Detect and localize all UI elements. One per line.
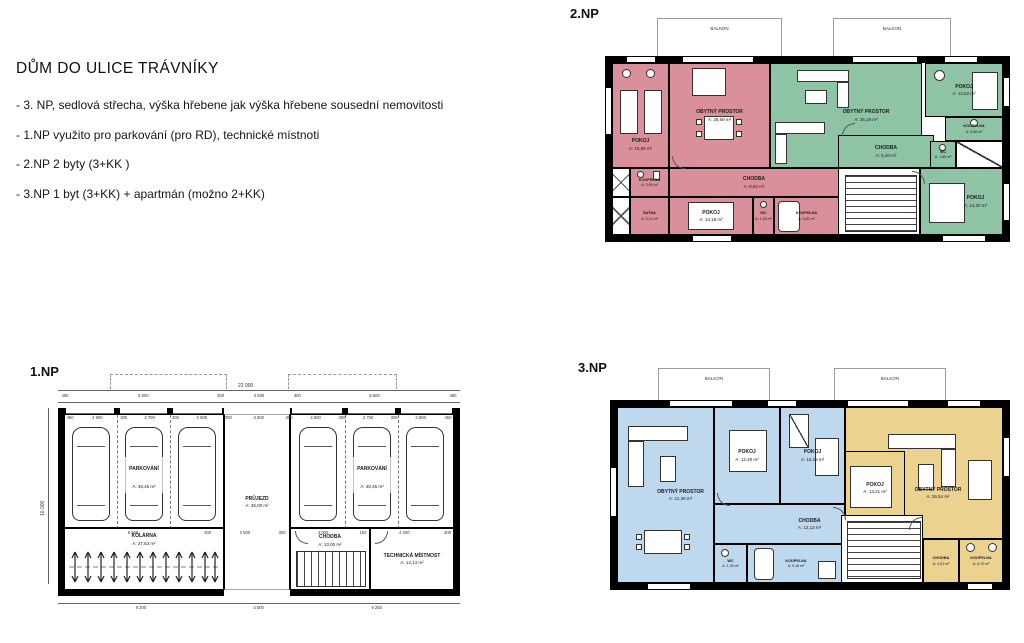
dimension-label: 3 500 xyxy=(227,393,292,398)
room-area: A: 5,18 m² xyxy=(788,564,805,568)
garage-right: PARKOVÁNÍ A: 48,45 m² xyxy=(290,414,454,528)
room-area: A: 27,63 m² xyxy=(132,541,155,546)
dimension-row: 8 5003003 5003004 0001504 200400 xyxy=(64,530,454,535)
dimension-label: 450 xyxy=(64,415,76,420)
room-prujezd: PRŮJEZD A: 35,00 m² xyxy=(224,414,290,590)
room-area: A: 1,63 m² xyxy=(755,217,772,221)
bed-shape xyxy=(620,90,638,134)
room-area: A: 26,54 m² xyxy=(926,494,949,499)
storage-niche xyxy=(612,197,630,235)
window xyxy=(605,87,612,135)
dimension-label: 300 xyxy=(291,393,303,398)
window xyxy=(942,235,986,242)
shower-shape xyxy=(956,141,1003,168)
balcony-label: BALKON xyxy=(705,376,723,381)
projection-outline xyxy=(288,374,397,389)
room-wc: WC A: 1,85 m² xyxy=(930,141,956,168)
dimension-label: 150 xyxy=(358,530,367,535)
sofa-shape xyxy=(797,70,849,82)
floor-plan-np1: 1.NP 22 000 4508 5003003 5003008 500450 … xyxy=(28,358,488,638)
dimension-row: 4502 8003002 7003002 8003003 5003002 800… xyxy=(64,415,454,420)
stall-divider xyxy=(398,415,399,528)
sink-shape xyxy=(721,549,729,557)
window xyxy=(944,56,978,63)
room-name: TECHNICKÁ MÍSTNOST xyxy=(384,553,441,561)
garage-door-opening xyxy=(292,408,452,414)
sofa-shape xyxy=(941,449,956,487)
dimension-label: 3 500 xyxy=(224,605,294,610)
room-area: A: 4,14 m² xyxy=(641,217,658,221)
window xyxy=(647,583,691,590)
pier xyxy=(167,408,173,414)
window xyxy=(610,467,617,517)
dimension-label: 22 000 xyxy=(238,383,253,389)
sofa-shape xyxy=(837,82,849,108)
stairwell xyxy=(838,168,920,235)
room-name: POKOJ xyxy=(967,195,985,203)
dimension-label: 300 xyxy=(202,530,214,535)
dimension-label: 10 000 xyxy=(40,501,46,516)
room-koupelna: KOUPELNA A: 6,72 m² xyxy=(959,539,1003,583)
wardrobe-shape xyxy=(789,414,809,448)
dimension-label: 9 250 xyxy=(293,605,460,610)
room-name: CHODBA xyxy=(743,176,765,184)
car-shape xyxy=(178,427,216,521)
table-shape xyxy=(934,70,945,81)
room-name: CHODBA xyxy=(319,534,341,542)
dining-table-shape xyxy=(968,460,992,500)
window xyxy=(692,235,732,242)
dimension-label: 450 xyxy=(446,393,460,398)
room-name: OBYTNÝ PROSTOR xyxy=(696,109,743,117)
bullet-line: - 3. NP, sedlová střecha, výška hřebene … xyxy=(16,98,496,112)
coffee-table-shape xyxy=(660,456,676,482)
room-area: A: 5,80 m² xyxy=(798,217,815,221)
room-satna: ŠATNA A: 4,14 m² xyxy=(630,197,669,235)
room-koupelna: KOUPELNA A: 5,18 m² xyxy=(747,544,845,583)
pier xyxy=(342,408,348,414)
window xyxy=(847,400,909,407)
room-area: A: 3,99 m² xyxy=(641,183,658,187)
car-shape xyxy=(72,427,110,521)
floor-label-np2: 2.NP xyxy=(570,6,599,21)
floor-plan-np3: BALKON BALKON OBYTNÝ PROSTOR A: 41,36 m² xyxy=(610,366,1016,592)
room-koupelna: KOUPELNA A: 5,06 m² xyxy=(945,117,1003,141)
window xyxy=(1003,437,1010,477)
room-area: A: 13,62 m² xyxy=(952,91,975,96)
plan-outline-np3: OBYTNÝ PROSTOR A: 41,36 m² POKOJ A: 12,4… xyxy=(610,400,1010,590)
dimension-label: 8 500 xyxy=(303,393,446,398)
room-area: A: 12,13 m² xyxy=(798,525,821,530)
dimension-label: 450 xyxy=(58,393,72,398)
window xyxy=(1003,183,1010,221)
room-area: A: 48,45 m² xyxy=(360,484,383,489)
wc-shape xyxy=(988,543,997,552)
window xyxy=(947,400,981,407)
balcony: BALKON xyxy=(657,18,782,56)
chair-shape xyxy=(696,119,702,125)
room-chodba: CHODBA A: 8,83 m² xyxy=(669,168,839,197)
dimension-line xyxy=(58,390,460,391)
room-pokoj: POKOJ A: 13,19 m² xyxy=(669,197,753,235)
garage-door-opening xyxy=(66,408,222,414)
passage-opening xyxy=(224,408,290,414)
room-name: POKOJ xyxy=(702,210,720,218)
room-koupelna: KOUPELNA A: 3,99 m² xyxy=(630,168,669,197)
balcony-label: BALKON xyxy=(883,26,901,31)
room-name: POKOJ xyxy=(632,138,650,146)
dining-table-shape xyxy=(644,530,682,554)
room-pokoj: POKOJ A: 13,21 m² xyxy=(845,451,905,525)
room-area: A: 48,45 m² xyxy=(132,484,155,489)
balcony-label: BALKON xyxy=(710,26,728,31)
floor-plan-np2: BALKON BALKON POKOJ A: 16,65 m² xyxy=(605,18,1011,244)
sofa-shape xyxy=(888,434,956,449)
floor-label-np3: 3.NP xyxy=(578,360,607,375)
room-pokoj: POKOJ A: 13,62 m² xyxy=(925,63,1003,117)
pier xyxy=(395,408,401,414)
kitchen-counter-shape xyxy=(775,134,787,164)
sink-shape xyxy=(966,543,975,552)
dimension-label: 300 xyxy=(223,415,233,420)
dimension-label: 8 500 xyxy=(72,393,215,398)
chair-shape xyxy=(696,131,702,137)
sofa-shape xyxy=(628,441,644,487)
dimension-label: 300 xyxy=(276,530,288,535)
room-area: A: 28,69 m² xyxy=(708,117,731,122)
dimension-label: 300 xyxy=(337,415,347,420)
room-area: A: 15,18 m² xyxy=(801,457,824,462)
sofa-shape xyxy=(628,426,688,441)
dimension-line xyxy=(48,408,49,584)
room-chodba: CHODBA A: 4,51 m² xyxy=(923,539,959,583)
room-name: PARKOVÁNÍ xyxy=(129,466,159,472)
room-label: PARKOVÁNÍ A: 48,45 m² xyxy=(349,457,395,493)
room-name: PRŮJEZD xyxy=(245,496,268,504)
shower-shape xyxy=(818,561,836,579)
room-name: POKOJ xyxy=(738,449,756,457)
plan-outline-np2: POKOJ A: 16,65 m² OBYTNÝ PROSTOR A: 28,6… xyxy=(605,56,1010,242)
window xyxy=(1003,77,1010,107)
dimension-label: 2 800 xyxy=(181,415,223,420)
car-shape xyxy=(299,427,337,521)
dimension-label: 300 xyxy=(170,415,180,420)
balcony: BALKON xyxy=(658,368,770,400)
room-obytny-prostor: OBYTNÝ PROSTOR A: 28,69 m² xyxy=(669,63,770,168)
sink-shape xyxy=(760,201,767,208)
bed-shape xyxy=(644,90,662,134)
chair-shape xyxy=(636,544,642,550)
room-pokoj: POKOJ A: 15,18 m² xyxy=(780,407,845,504)
room-chodba: CHODBA A: 12,13 m² xyxy=(714,504,845,544)
bullet-line: - 1.NP využito pro parkování (pro RD), t… xyxy=(16,128,496,142)
room-technicka-mistnost: TECHNICKÁ MÍSTNOST A: 14,14 m² xyxy=(370,528,454,590)
table-shape xyxy=(646,69,655,78)
page-title: DŮM DO ULICE TRÁVNÍKY xyxy=(16,60,496,78)
dimension-row: 4508 5003003 5003008 500450 xyxy=(58,393,460,398)
dimension-label: 8 500 xyxy=(64,530,202,535)
dimension-label: 450 xyxy=(442,415,454,420)
sofa-shape xyxy=(692,68,726,96)
balcony-label: BALKON xyxy=(881,376,899,381)
dimension-label: 4 200 xyxy=(368,530,441,535)
balcony: BALKON xyxy=(833,18,951,56)
dimension-line xyxy=(58,603,460,604)
window xyxy=(767,400,797,407)
bathtub-shape xyxy=(754,548,774,580)
balcony: BALKON xyxy=(834,368,946,400)
passage-opening xyxy=(224,590,290,596)
room-area: A: 36,19 m² xyxy=(854,117,877,122)
dimension-row: 9 2003 5009 250 xyxy=(58,605,460,610)
room-name: POKOJ xyxy=(955,84,973,92)
dimension-label: 300 xyxy=(284,415,294,420)
storage-niche xyxy=(612,168,630,197)
floor-label-np1: 1.NP xyxy=(30,364,59,379)
room-wc: WC A: 1,35 m² xyxy=(714,544,747,583)
room-name: POKOJ xyxy=(804,449,822,457)
room-pokoj: POKOJ A: 16,65 m² xyxy=(612,63,669,168)
room-area: A: 8,83 m² xyxy=(744,184,765,189)
window xyxy=(626,56,656,63)
pier xyxy=(114,408,120,414)
room-area: A: 1,35 m² xyxy=(722,564,739,568)
chair-shape xyxy=(636,534,642,540)
room-area: A: 13,21 m² xyxy=(863,489,886,494)
bullet-line: - 2.NP 2 byty (3+KK ) xyxy=(16,157,496,171)
stall-divider xyxy=(170,415,171,528)
sheet: DŮM DO ULICE TRÁVNÍKY - 3. NP, sedlová s… xyxy=(0,0,1024,643)
room-name: CHODBA xyxy=(799,518,821,526)
chair-shape xyxy=(684,544,690,550)
dimension-label: 2 800 xyxy=(399,415,441,420)
bullet-line: - 3.NP 1 byt (3+KK) + apartmán (možno 2+… xyxy=(16,187,496,201)
stairs-shape xyxy=(845,175,917,232)
chair-shape xyxy=(736,131,742,137)
dimension-label: 3 500 xyxy=(234,415,284,420)
room-area: A: 41,36 m² xyxy=(669,496,692,501)
dimension-label: 400 xyxy=(441,530,454,535)
window xyxy=(669,400,733,407)
room-area: A: 5,40 m² xyxy=(876,153,897,158)
room-area: A: 14,14 m² xyxy=(400,560,423,565)
room-wc: WC A: 1,63 m² xyxy=(753,197,774,235)
stall-divider xyxy=(117,415,118,528)
dimension-label: 3 500 xyxy=(213,530,276,535)
dimension-line xyxy=(58,402,460,403)
room-area: A: 6,72 m² xyxy=(973,562,990,566)
coffee-table-shape xyxy=(805,90,827,104)
stairs-shape xyxy=(296,551,366,587)
dimension-label: 2 800 xyxy=(294,415,336,420)
room-area: A: 14,30 m² xyxy=(964,203,987,208)
room-chodba: CHODBA A: 13,00 m² xyxy=(290,528,370,590)
room-koupelna: KOUPELNA A: 5,80 m² xyxy=(774,197,839,235)
kitchen-counter-shape xyxy=(775,122,825,134)
stall-divider xyxy=(345,415,346,528)
room-name: OBYTNÝ PROSTOR xyxy=(915,487,962,495)
dimension-label: 300 xyxy=(215,393,227,398)
room-name: OBYTNÝ PROSTOR xyxy=(657,489,704,497)
room-area: A: 16,65 m² xyxy=(629,146,652,151)
room-area: A: 5,06 m² xyxy=(966,130,983,134)
room-kolarna: KOLÁRNA A: 27,63 m² xyxy=(64,528,224,590)
room-name: CHODBA xyxy=(875,145,897,153)
window xyxy=(967,583,993,590)
dimension-label: 300 xyxy=(389,415,399,420)
room-area: A: 4,51 m² xyxy=(933,562,950,566)
room-area: A: 12,48 m² xyxy=(735,457,758,462)
title-block: DŮM DO ULICE TRÁVNÍKY - 3. NP, sedlová s… xyxy=(16,60,496,216)
chair-shape xyxy=(684,534,690,540)
room-name: POKOJ xyxy=(866,482,884,490)
room-pokoj: POKOJ A: 12,48 m² xyxy=(714,407,780,504)
room-pokoj: POKOJ A: 14,30 m² xyxy=(920,168,1003,235)
room-area: A: 1,85 m² xyxy=(935,155,952,159)
table-shape xyxy=(622,69,631,78)
room-name: OBYTNÝ PROSTOR xyxy=(843,109,890,117)
car-shape xyxy=(406,427,444,521)
dimension-label: 2 800 xyxy=(76,415,118,420)
plan-outline-np1: 4502 8003002 7003002 8003003 5003002 800… xyxy=(58,408,460,596)
dimension-label: 2 700 xyxy=(129,415,170,420)
bike-racks xyxy=(69,549,219,585)
room-name: PARKOVÁNÍ xyxy=(357,466,387,472)
window xyxy=(682,56,754,63)
room-chodba: CHODBA A: 5,40 m² xyxy=(838,135,934,168)
room-obytny-prostor: OBYTNÝ PROSTOR A: 41,36 m² xyxy=(617,407,714,583)
window xyxy=(852,56,918,63)
dimension-label: 9 200 xyxy=(58,605,224,610)
projection-outline xyxy=(110,374,227,389)
garage-left: PARKOVÁNÍ A: 48,45 m² xyxy=(64,414,224,528)
chair-shape xyxy=(736,119,742,125)
bed-shape xyxy=(929,183,965,223)
room-area: A: 35,00 m² xyxy=(245,503,268,508)
room-label: PARKOVÁNÍ A: 48,45 m² xyxy=(121,457,167,493)
dimension-label: 2 750 xyxy=(347,415,389,420)
room-area: A: 13,19 m² xyxy=(699,217,722,222)
room-area: A: 13,00 m² xyxy=(318,542,341,547)
dimension-label: 4 000 xyxy=(288,530,358,535)
dimension-label: 300 xyxy=(119,415,129,420)
